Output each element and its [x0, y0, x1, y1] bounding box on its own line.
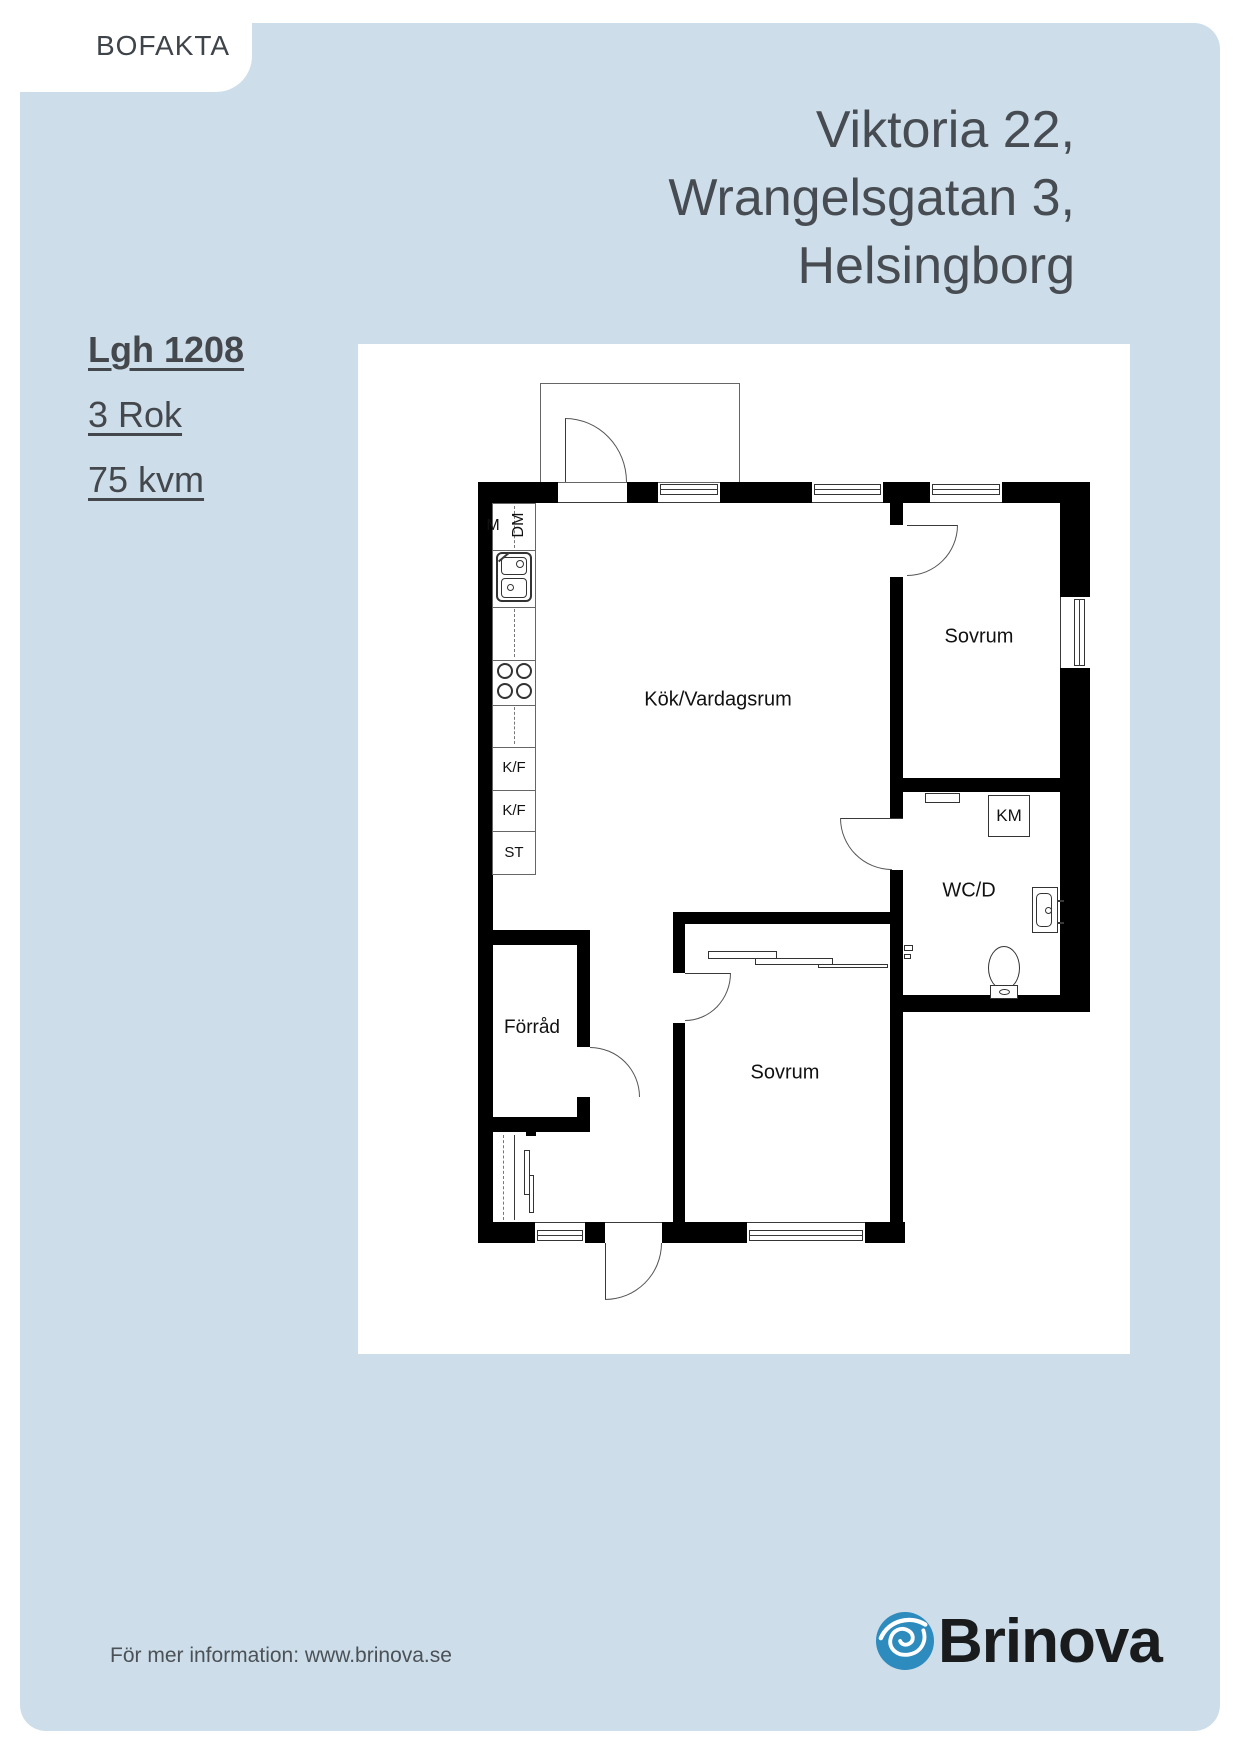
- property-title: Viktoria 22, Wrangelsgatan 3, Helsingbor…: [668, 96, 1075, 300]
- wall-segment: [627, 482, 658, 503]
- threshold-line: [558, 502, 627, 503]
- wall-segment: [890, 870, 903, 1222]
- counter-divider: [492, 660, 536, 661]
- counter-dash: [514, 707, 515, 744]
- wall-segment: [662, 1222, 747, 1243]
- basin-bracket: [1058, 922, 1064, 924]
- window-sill: [1060, 597, 1061, 668]
- wall-segment: [883, 482, 930, 503]
- door-arc: [590, 1047, 640, 1097]
- threshold-line: [605, 1222, 662, 1223]
- bofakta-sheet: BOFAKTA Viktoria 22, Wrangelsgatan 3, He…: [0, 0, 1240, 1754]
- window-sill: [658, 502, 720, 503]
- room-label-bedroom-top: Sovrum: [945, 626, 1014, 649]
- stove-burner: [516, 663, 532, 679]
- apartment-id: Lgh 1208: [88, 330, 244, 370]
- shower-mixer: [904, 945, 913, 951]
- wall-segment: [493, 930, 590, 945]
- room-label-kitchen-living: Kök/Vardagsrum: [644, 689, 791, 712]
- wall-segment: [493, 1117, 590, 1132]
- sink-faucet: [507, 584, 514, 591]
- door-arc: [605, 1243, 662, 1300]
- wall-segment: [890, 778, 1060, 792]
- wall-segment: [577, 930, 590, 1047]
- micro-label: M: [478, 517, 508, 535]
- closet-line: [514, 1135, 515, 1220]
- wardrobe-panel: [818, 964, 888, 968]
- window-line: [537, 1235, 583, 1236]
- window-sill: [747, 1222, 865, 1223]
- closet-dash-line: [503, 1135, 504, 1220]
- toilet-bowl: [988, 946, 1020, 990]
- floorplan-canvas: M DM K/F K/F ST KM Kök/V: [358, 344, 1130, 1354]
- room-label-wc: WC/D: [942, 880, 995, 903]
- apartment-facts: Lgh 1208 3 Rok 75 kvm: [88, 330, 244, 525]
- title-line-1: Viktoria 22,: [668, 96, 1075, 164]
- door-arc: [685, 973, 731, 1021]
- counter-dash: [514, 609, 515, 657]
- brinova-logo-icon: [876, 1612, 934, 1670]
- apartment-rooms: 3 Rok: [88, 395, 244, 435]
- fridge-label: K/F: [492, 802, 536, 819]
- wall-segment: [890, 503, 903, 525]
- pantry-label: ST: [492, 844, 536, 861]
- wall-segment: [1060, 668, 1090, 1010]
- fridge-label: K/F: [492, 759, 536, 776]
- counter-divider: [492, 747, 536, 748]
- counter-divider: [492, 790, 536, 791]
- stove-burner: [497, 663, 513, 679]
- window-line: [814, 489, 881, 490]
- bofakta-label: BOFAKTA: [96, 30, 230, 62]
- brinova-wordmark: Brinova: [938, 1606, 1162, 1677]
- wall-segment: [673, 912, 685, 973]
- wall-segment: [478, 482, 493, 1243]
- wall-segment: [526, 1128, 536, 1136]
- stove-burner: [516, 683, 532, 699]
- counter-divider: [492, 607, 536, 608]
- window-sill: [812, 502, 883, 503]
- window-sill: [535, 1222, 585, 1223]
- wall-segment: [1060, 482, 1090, 597]
- apartment-area: 75 kvm: [88, 460, 244, 500]
- counter-divider: [492, 705, 536, 706]
- shower-mixer: [904, 954, 911, 959]
- sink-faucet: [516, 560, 524, 568]
- bofakta-tab: BOFAKTA: [0, 0, 252, 92]
- basin-bracket: [1058, 900, 1064, 902]
- door-arc: [840, 818, 892, 870]
- counter-divider: [492, 550, 536, 551]
- toilet-button: [999, 989, 1010, 995]
- door-arc: [907, 525, 958, 576]
- washbasin-drain: [1045, 907, 1052, 914]
- bathroom-cabinet: [925, 793, 960, 803]
- washer-label: KM: [996, 806, 1022, 826]
- closet-door: [529, 1175, 534, 1213]
- wall-segment: [673, 1023, 685, 1222]
- room-label-storage: Förråd: [504, 1017, 560, 1039]
- sink-basin: [501, 578, 527, 598]
- title-line-3: Helsingborg: [668, 232, 1075, 300]
- room-label-bedroom-bottom: Sovrum: [751, 1062, 820, 1085]
- window-line: [749, 1235, 863, 1236]
- wall-segment: [865, 1222, 905, 1243]
- wall-segment: [673, 912, 890, 924]
- window-line: [1079, 599, 1080, 666]
- footer-info-text: För mer information: www.brinova.se: [110, 1644, 452, 1668]
- wall-segment: [720, 482, 812, 503]
- counter-divider: [492, 831, 536, 832]
- dishwasher-label: DM: [510, 503, 528, 547]
- stove-burner: [497, 683, 513, 699]
- window-line: [932, 489, 1000, 490]
- title-line-2: Wrangelsgatan 3,: [668, 164, 1075, 232]
- window-line: [660, 489, 718, 490]
- wall-segment: [585, 1222, 605, 1243]
- window-sill: [930, 502, 1002, 503]
